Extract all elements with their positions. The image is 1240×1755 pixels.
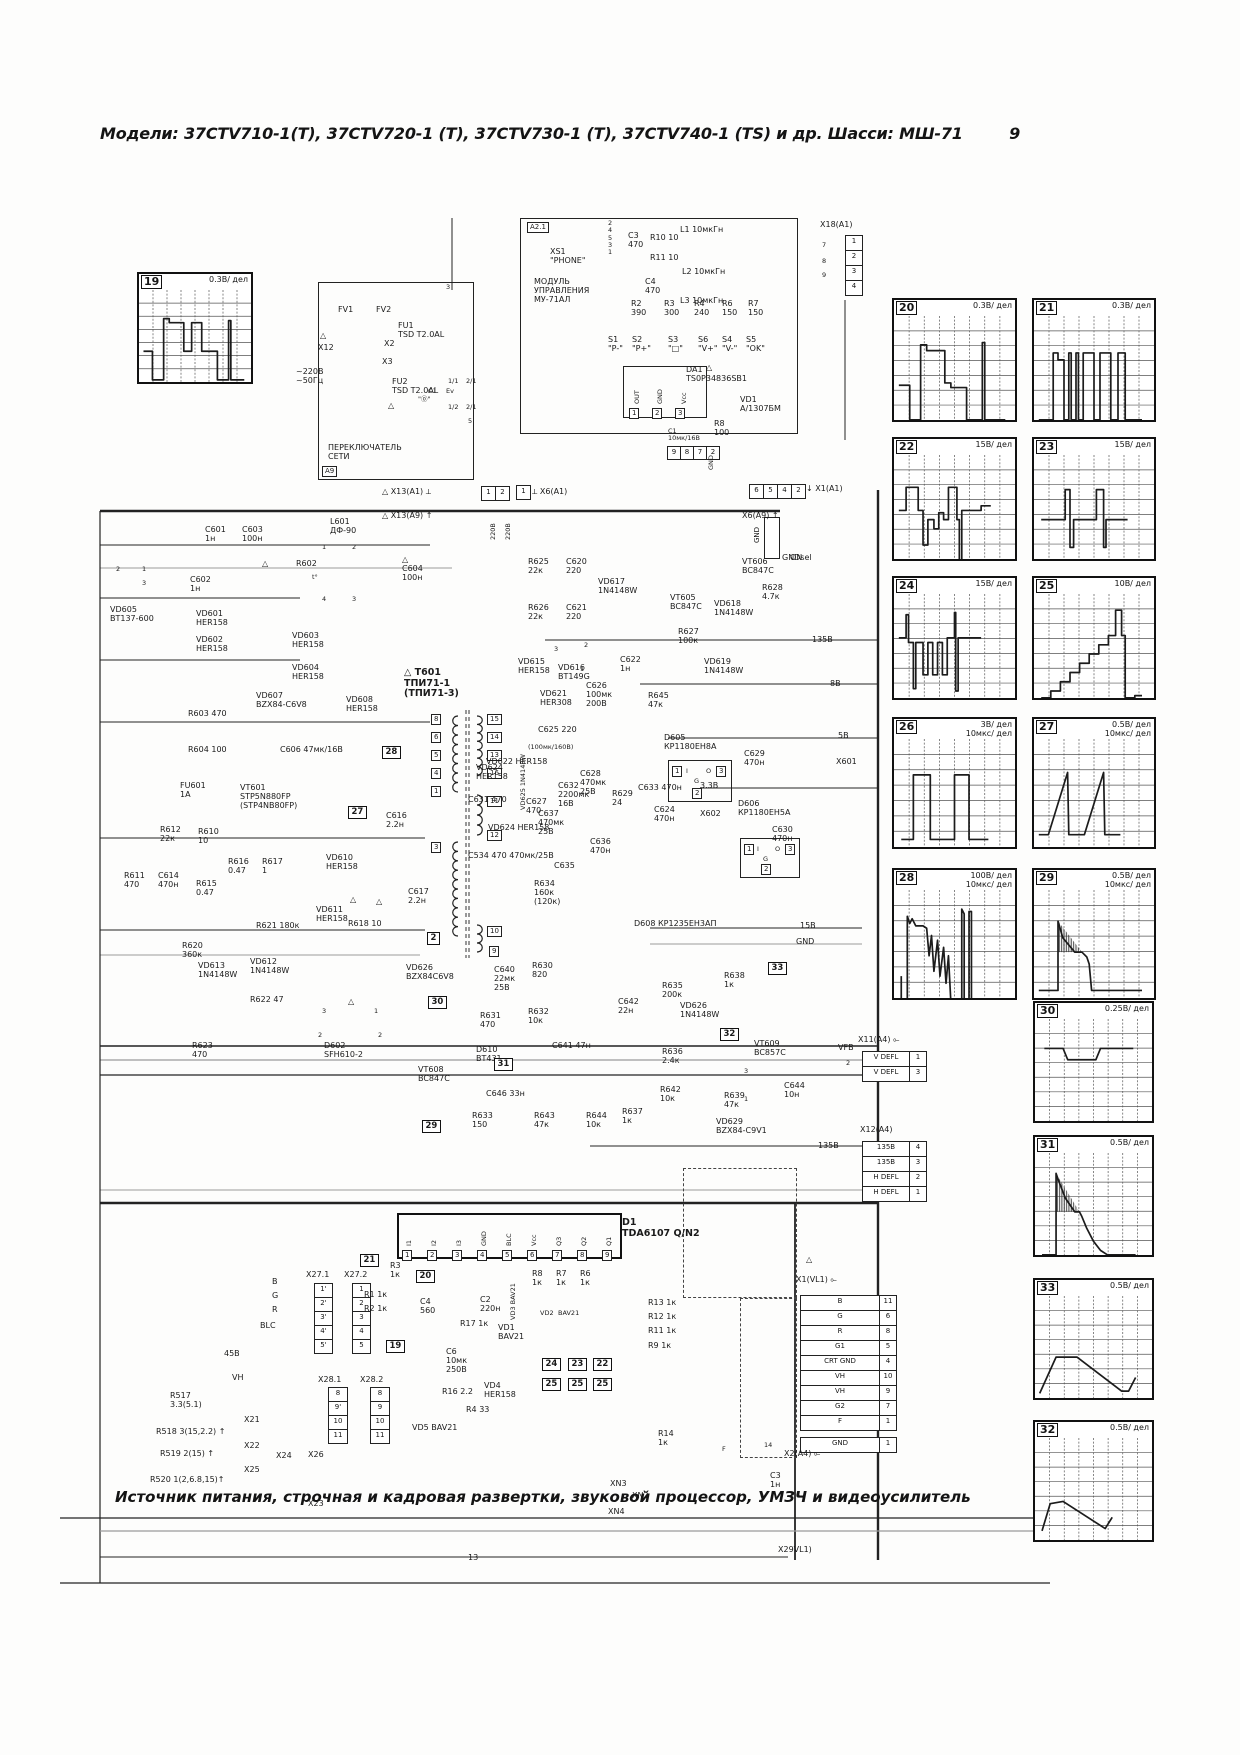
oscillogram-33: 330.5В/ дел bbox=[1033, 1278, 1154, 1400]
oscillogram-screen bbox=[1035, 1296, 1152, 1398]
oscillogram-23: 2315В/ дел bbox=[1032, 437, 1156, 561]
oscillogram-number: 26 bbox=[896, 720, 917, 734]
oscillogram-scale: 3В/ дел 10мкс/ дел bbox=[966, 720, 1012, 738]
oscillogram-screen bbox=[894, 739, 1015, 847]
oscillogram-number: 27 bbox=[1036, 720, 1057, 734]
oscillogram-scale: 0.3В/ дел bbox=[1112, 301, 1151, 310]
oscillogram-number: 32 bbox=[1037, 1423, 1058, 1437]
oscillogram-scale: 0.25В/ дел bbox=[1105, 1004, 1149, 1013]
oscillogram-screen bbox=[1034, 739, 1154, 847]
oscillogram-number: 20 bbox=[896, 301, 917, 315]
oscillogram-number: 25 bbox=[1036, 579, 1057, 593]
oscillogram-21: 210.3В/ дел bbox=[1032, 298, 1156, 422]
oscillogram-scale: 0.5В/ дел 10мкс/ дел bbox=[1105, 720, 1151, 738]
oscillogram-number: 33 bbox=[1037, 1281, 1058, 1295]
oscillogram-number: 24 bbox=[896, 579, 917, 593]
oscillogram-screen bbox=[894, 890, 1015, 998]
oscillogram-number: 22 bbox=[896, 440, 917, 454]
oscillogram-number: 29 bbox=[1036, 871, 1057, 885]
oscillogram-scale: 15В/ дел bbox=[1115, 440, 1151, 449]
oscillogram-scale: 0.5В/ дел 10мкс/ дел bbox=[1105, 871, 1151, 889]
oscillogram-scale: 0.5В/ дел bbox=[1110, 1281, 1149, 1290]
oscillogram-screen bbox=[1034, 316, 1154, 420]
oscillogram-scale: 0.5В/ дел bbox=[1110, 1423, 1149, 1432]
oscillogram-scale: 0.5В/ дел bbox=[1110, 1138, 1149, 1147]
oscillogram-27: 270.5В/ дел 10мкс/ дел bbox=[1032, 717, 1156, 849]
oscillogram-scale: 15В/ дел bbox=[976, 440, 1012, 449]
oscillogram-22: 2215В/ дел bbox=[892, 437, 1017, 561]
oscillogram-25: 2510В/ дел bbox=[1032, 576, 1156, 700]
service-manual-page: { "header": { "title": "Модели: 37CTV710… bbox=[0, 0, 1240, 1755]
oscillogram-number: 23 bbox=[1036, 440, 1057, 454]
oscillogram-number: 21 bbox=[1036, 301, 1057, 315]
oscillogram-24: 2415В/ дел bbox=[892, 576, 1017, 700]
oscillogram-29: 290.5В/ дел 10мкс/ дел bbox=[1032, 868, 1156, 1000]
oscillogram-28: 28100В/ дел 10мкс/ дел bbox=[892, 868, 1017, 1000]
oscillogram-30: 300.25В/ дел bbox=[1033, 1001, 1154, 1123]
oscillogram-number: 19 bbox=[141, 275, 162, 289]
oscillogram-26: 263В/ дел 10мкс/ дел bbox=[892, 717, 1017, 849]
oscillogram-31: 310.5В/ дел bbox=[1033, 1135, 1154, 1257]
oscillogram-20: 200.3В/ дел bbox=[892, 298, 1017, 422]
oscillogram-screen bbox=[1035, 1153, 1152, 1255]
oscillogram-scale: 100В/ дел 10мкс/ дел bbox=[966, 871, 1012, 889]
oscillogram-number: 30 bbox=[1037, 1004, 1058, 1018]
schematic-caption: Источник питания, строчная и кадровая ра… bbox=[115, 1488, 1115, 1506]
oscillogram-32: 320.5В/ дел bbox=[1033, 1420, 1154, 1542]
oscillogram-screen bbox=[1034, 455, 1154, 559]
oscillogram-scale: 0.3В/ дел bbox=[209, 275, 248, 284]
oscillogram-19: 190.3В/ дел bbox=[137, 272, 253, 384]
oscillogram-screen bbox=[1034, 594, 1154, 698]
oscillogram-scale: 10В/ дел bbox=[1115, 579, 1151, 588]
oscillogram-screen bbox=[1034, 890, 1154, 998]
oscillogram-scale: 15В/ дел bbox=[976, 579, 1012, 588]
oscillogram-screen bbox=[894, 594, 1015, 698]
oscillogram-number: 28 bbox=[896, 871, 917, 885]
oscillogram-scale: 0.3В/ дел bbox=[973, 301, 1012, 310]
oscillogram-screen bbox=[894, 316, 1015, 420]
oscillogram-screen bbox=[139, 290, 251, 382]
oscillogram-screen bbox=[894, 455, 1015, 559]
oscillogram-screen bbox=[1035, 1019, 1152, 1121]
oscillogram-number: 31 bbox=[1037, 1138, 1058, 1152]
